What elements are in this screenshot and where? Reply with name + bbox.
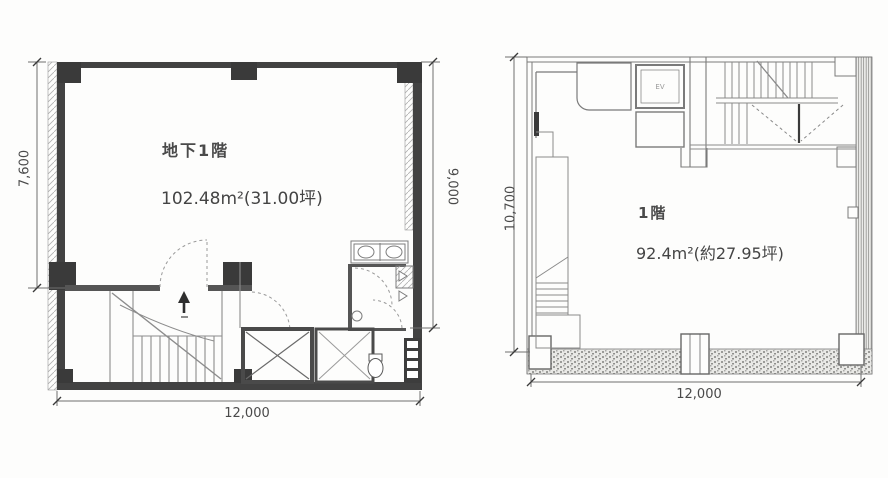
ff-side-staircase (536, 132, 580, 348)
first-floor-plan: EV (505, 53, 872, 387)
basement-stairs (110, 262, 240, 382)
first-floor-area-label: 92.4m²(約27.95坪) (636, 246, 784, 262)
ff-staircase (690, 61, 856, 149)
basement-dim-right: 9,000 (446, 157, 459, 217)
ff-elevator-room: EV (636, 65, 684, 108)
basement-area-label: 102.48m²(31.00坪) (161, 191, 323, 208)
basement-dim-left: 7,600 (19, 139, 32, 199)
elevator-shaft-left (243, 329, 312, 382)
up-arrow-icon (178, 291, 190, 318)
basement-restroom (351, 241, 421, 383)
elevator-shaft-right (316, 329, 373, 382)
first-floor-dim-left: 10,700 (505, 174, 518, 244)
basement-plan (28, 58, 440, 406)
first-floor-dim-bottom: 12,000 (659, 388, 739, 401)
ff-entrance-walls (534, 63, 631, 138)
basement-outer-walls (48, 62, 422, 390)
basement-title: 地下1階 (162, 143, 229, 159)
ev-label: EV (655, 83, 664, 91)
basement-dim-bottom: 12,000 (207, 407, 287, 420)
floorplan-drawing: EV (0, 0, 888, 478)
first-floor-title: 1階 (638, 206, 667, 221)
basement-columns (49, 62, 422, 383)
ff-service-room (636, 112, 684, 147)
floorplan-sheet: EV (0, 0, 888, 478)
